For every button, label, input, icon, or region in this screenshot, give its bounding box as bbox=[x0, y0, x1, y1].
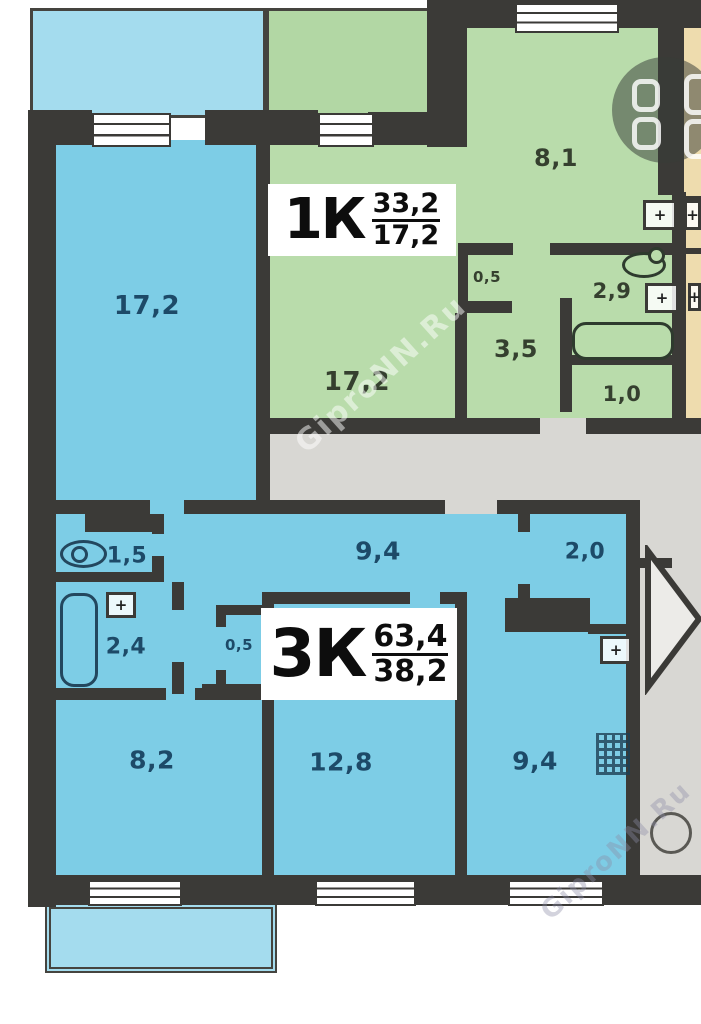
area-total-label: 33,2 bbox=[372, 190, 441, 221]
wall bbox=[56, 572, 164, 582]
wall bbox=[518, 502, 530, 532]
room-fill-blue-17-2 bbox=[56, 140, 258, 502]
room-area-label: 17,2 bbox=[114, 291, 180, 321]
room-area-label: 8,1 bbox=[534, 144, 578, 172]
room-area-label: 17,2 bbox=[324, 367, 390, 397]
balcony-bottom-left bbox=[45, 903, 277, 973]
apartment-type-label: 3К bbox=[270, 625, 366, 683]
logo-square-icon bbox=[632, 79, 660, 112]
wall bbox=[427, 0, 467, 147]
window bbox=[515, 3, 619, 33]
wall bbox=[683, 248, 701, 254]
room-area-label: 3,5 bbox=[494, 335, 538, 363]
door-opening-entrance-3k bbox=[445, 500, 497, 514]
wall bbox=[270, 592, 410, 604]
wall bbox=[262, 418, 701, 434]
wall bbox=[560, 298, 572, 412]
sink-faucet-icon bbox=[648, 247, 665, 264]
stairs-arrow-icon bbox=[640, 545, 701, 695]
vent-grid-icon bbox=[596, 733, 630, 775]
vent-shaft-block bbox=[85, 512, 152, 532]
apartment-area-fraction: 63,4 38,2 bbox=[372, 621, 448, 686]
bathtub-icon bbox=[572, 322, 674, 360]
wall bbox=[28, 110, 56, 907]
apartment-stamp-3k: 3К 63,4 38,2 bbox=[261, 608, 457, 700]
apartment-type-label: 1К bbox=[284, 195, 365, 244]
window bbox=[508, 880, 604, 906]
room-area-label: 1,0 bbox=[603, 382, 642, 406]
balcony-top-left bbox=[30, 8, 266, 118]
wall bbox=[152, 512, 164, 534]
door-opening bbox=[410, 592, 440, 604]
room-area-label: 2,4 bbox=[106, 635, 146, 660]
plus-box-icon: + bbox=[600, 636, 632, 664]
column-circle-icon bbox=[650, 812, 692, 854]
wall bbox=[56, 688, 166, 700]
bathtub-icon bbox=[60, 593, 98, 687]
area-living-label: 38,2 bbox=[372, 656, 448, 687]
window bbox=[88, 880, 182, 906]
window bbox=[92, 113, 171, 147]
apartment-stamp-1k: 1К 33,2 17,2 bbox=[268, 184, 456, 256]
window bbox=[315, 880, 416, 906]
apartment-area-fraction: 33,2 17,2 bbox=[372, 190, 441, 249]
wall bbox=[202, 684, 264, 696]
room-area-label: 1,5 bbox=[107, 544, 147, 569]
room-area-label: 0,5 bbox=[473, 268, 501, 286]
wall bbox=[368, 112, 427, 145]
room-area-label: 2,9 bbox=[593, 279, 632, 303]
room-area-label: 9,4 bbox=[355, 537, 401, 566]
toilet-bowl-icon bbox=[71, 546, 88, 563]
wall bbox=[172, 582, 184, 610]
floor-plan: + + + + + + 1К 33,2 17,2 3К 63,4 38,2 17… bbox=[0, 0, 701, 1024]
door-opening-entrance-1k bbox=[540, 418, 586, 434]
room-area-label: 12,8 bbox=[309, 748, 373, 777]
window bbox=[318, 113, 374, 147]
wall bbox=[458, 301, 512, 313]
plus-box-icon: + bbox=[688, 283, 701, 311]
room-area-label: 2,0 bbox=[565, 540, 605, 565]
wardrobe-block bbox=[505, 598, 590, 632]
area-total-label: 63,4 bbox=[372, 621, 448, 655]
room-area-label: 9,4 bbox=[512, 747, 558, 776]
area-living-label: 17,2 bbox=[372, 222, 441, 250]
plus-box-icon: + bbox=[106, 592, 136, 618]
wall bbox=[216, 605, 226, 627]
door-opening bbox=[150, 500, 184, 514]
room-area-label: 8,2 bbox=[129, 746, 175, 775]
logo-square-icon bbox=[632, 117, 661, 150]
wall bbox=[455, 313, 467, 432]
plus-box-icon: + bbox=[645, 283, 679, 313]
wall bbox=[172, 662, 184, 694]
room-area-label: 0,5 bbox=[225, 636, 253, 654]
logo-square-icon bbox=[684, 119, 701, 159]
plus-box-icon: + bbox=[643, 200, 677, 230]
logo-square-icon bbox=[684, 74, 701, 115]
plus-box-icon: + bbox=[684, 200, 701, 230]
